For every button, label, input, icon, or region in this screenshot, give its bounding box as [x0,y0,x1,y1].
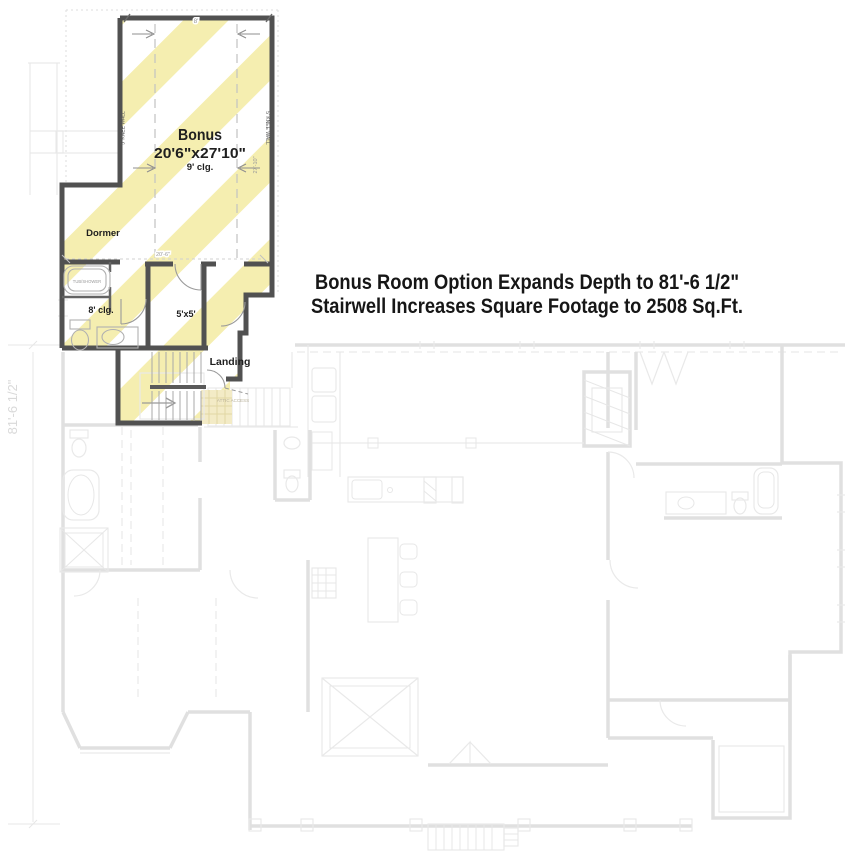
floor-plan-drawing: 81'-6 1/2" [0,0,850,861]
caption: Bonus Room Option Expands Depth to 81'-6… [311,270,743,318]
knee-wall-right-label: 5' KNEE WALL [264,111,270,145]
dim-top-label: 8' [194,18,199,25]
dim-depth-label: 27'-10" [253,156,259,173]
overall-depth-dimension: 81'-6 1/2" [5,379,20,434]
knee-wall-left-label: 5' KNEE WALL [121,111,127,145]
laundry [308,345,340,477]
master-bath [60,425,200,596]
caption-line-1: Bonus Room Option Expands Depth to 81'-6… [315,270,739,294]
ceiling-beam-detail [322,678,418,756]
dormer-label: Dormer [86,228,120,239]
bonus-room-ceiling: 9' clg. [187,162,214,173]
porch-steps [428,824,518,850]
hall-bath-fixtures [666,468,778,514]
kitchen [312,477,463,622]
tub-shower-label: TUB/SHOWER [73,279,101,284]
bonus-room-label: Bonus [178,127,222,144]
caption-line-2: Stairwell Increases Square Footage to 25… [311,294,743,318]
bonus-area-highlight [55,10,285,430]
bath-ceiling-label: 8' clg. [88,305,113,315]
landing-label: Landing [210,356,251,368]
attic-access-hatch [201,390,232,424]
closet-size-label: 5'x5' [176,309,195,319]
floor-plan-sheet: 81'-6 1/2" [0,0,850,861]
dim-width-label: 20'-6" [156,252,170,258]
powder-room [275,430,310,500]
attic-access-label: ATTIC ACCESS [217,398,249,403]
bonus-room-dimensions: 20'6"x27'10" [154,145,246,162]
